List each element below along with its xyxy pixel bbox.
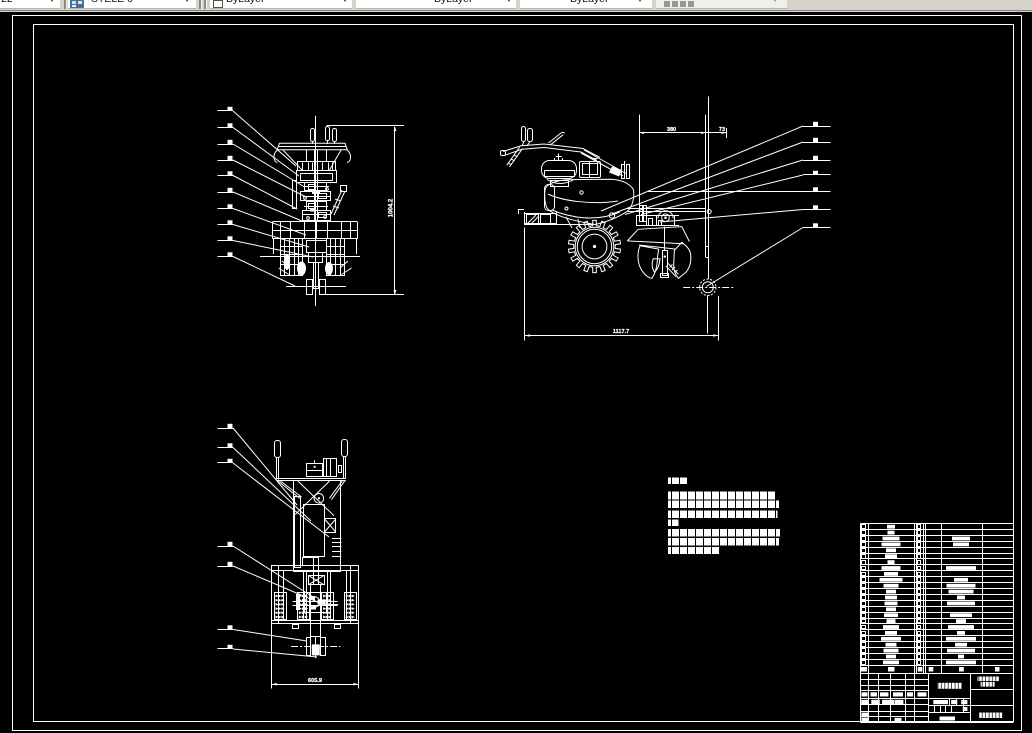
svg-text:605.9: 605.9 [308, 678, 322, 684]
svg-text:1004.2: 1004.2 [389, 198, 395, 217]
svg-text:380: 380 [667, 127, 676, 133]
svg-text:1117.7: 1117.7 [613, 329, 630, 335]
